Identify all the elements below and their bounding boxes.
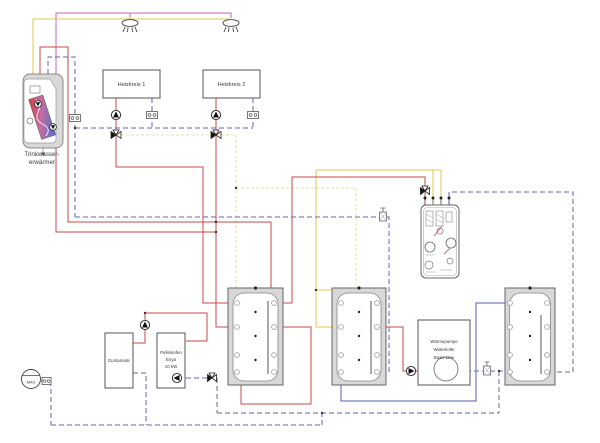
- hydraulic-schematic: Trinkwasser- erwärmer Heizkreis 1 Heizkr…: [0, 0, 600, 443]
- tap-valve-icon-2: [484, 362, 491, 375]
- dhw-pump2-icon: [50, 124, 57, 131]
- heatpump-box: [418, 320, 470, 385]
- hk2-pump-icon: [211, 110, 220, 119]
- stove-label-2: Enya: [166, 357, 177, 362]
- sensor-line-yellow: [121, 135, 356, 290]
- dhw-tank: [23, 74, 63, 156]
- buffer-tank-2: [332, 286, 386, 385]
- dhw-pump-icon: [35, 101, 42, 108]
- boiler-label: Guntamatic: [108, 358, 131, 363]
- stove-label-3: 10 kW: [165, 364, 178, 369]
- heizkreis2-label: Heizkreis 2: [218, 82, 246, 88]
- stove-mixing-valve-icon: [208, 373, 217, 382]
- mag-fitting-icon: [42, 378, 51, 385]
- pipe-hk1-supply: [116, 98, 237, 303]
- shower-tap-2: [223, 20, 239, 32]
- heatpump-label-1: Wärmepumpe: [430, 339, 458, 344]
- heatpump-label-2: Waterkotte: [433, 347, 455, 352]
- pipe-dhw-return: [56, 148, 216, 232]
- heatpump-pump-icon: [406, 366, 415, 375]
- pipe-hot-tapwater: [56, 13, 231, 74]
- hk1-fitting-icon: [147, 112, 158, 119]
- shower-tap-1: [122, 20, 138, 32]
- dhw-tank-label-2: erwärmer: [29, 159, 55, 166]
- stove-pump-icon: [172, 373, 181, 382]
- dhw-fitting-icon: [70, 115, 81, 122]
- pipe-buffer1-to-module: [274, 177, 425, 303]
- fresh-water-module: [421, 197, 459, 279]
- dhw-tank-label-1: Trinkwasser-: [24, 151, 59, 158]
- boiler-pump-icon: [140, 320, 149, 329]
- compressor-circle: [434, 357, 458, 381]
- heatpump-label-3: Basic Line: [434, 355, 455, 360]
- buffer-tank-1: [228, 286, 283, 385]
- mag-label: MAG: [27, 380, 36, 385]
- hk2-fitting-icon: [248, 112, 259, 119]
- tap-valve-icon-1: [380, 208, 387, 221]
- buffer-tank-3: [505, 286, 555, 385]
- heizkreis1-label: Heizkreis 1: [118, 82, 146, 88]
- stove-label-1: Pelletsofen: [160, 350, 182, 355]
- pipe-cold-water: [33, 19, 441, 327]
- hk1-pump-icon: [111, 110, 120, 119]
- schematic-canvas: Trinkwasser- erwärmer Heizkreis 1 Heizkr…: [0, 0, 600, 443]
